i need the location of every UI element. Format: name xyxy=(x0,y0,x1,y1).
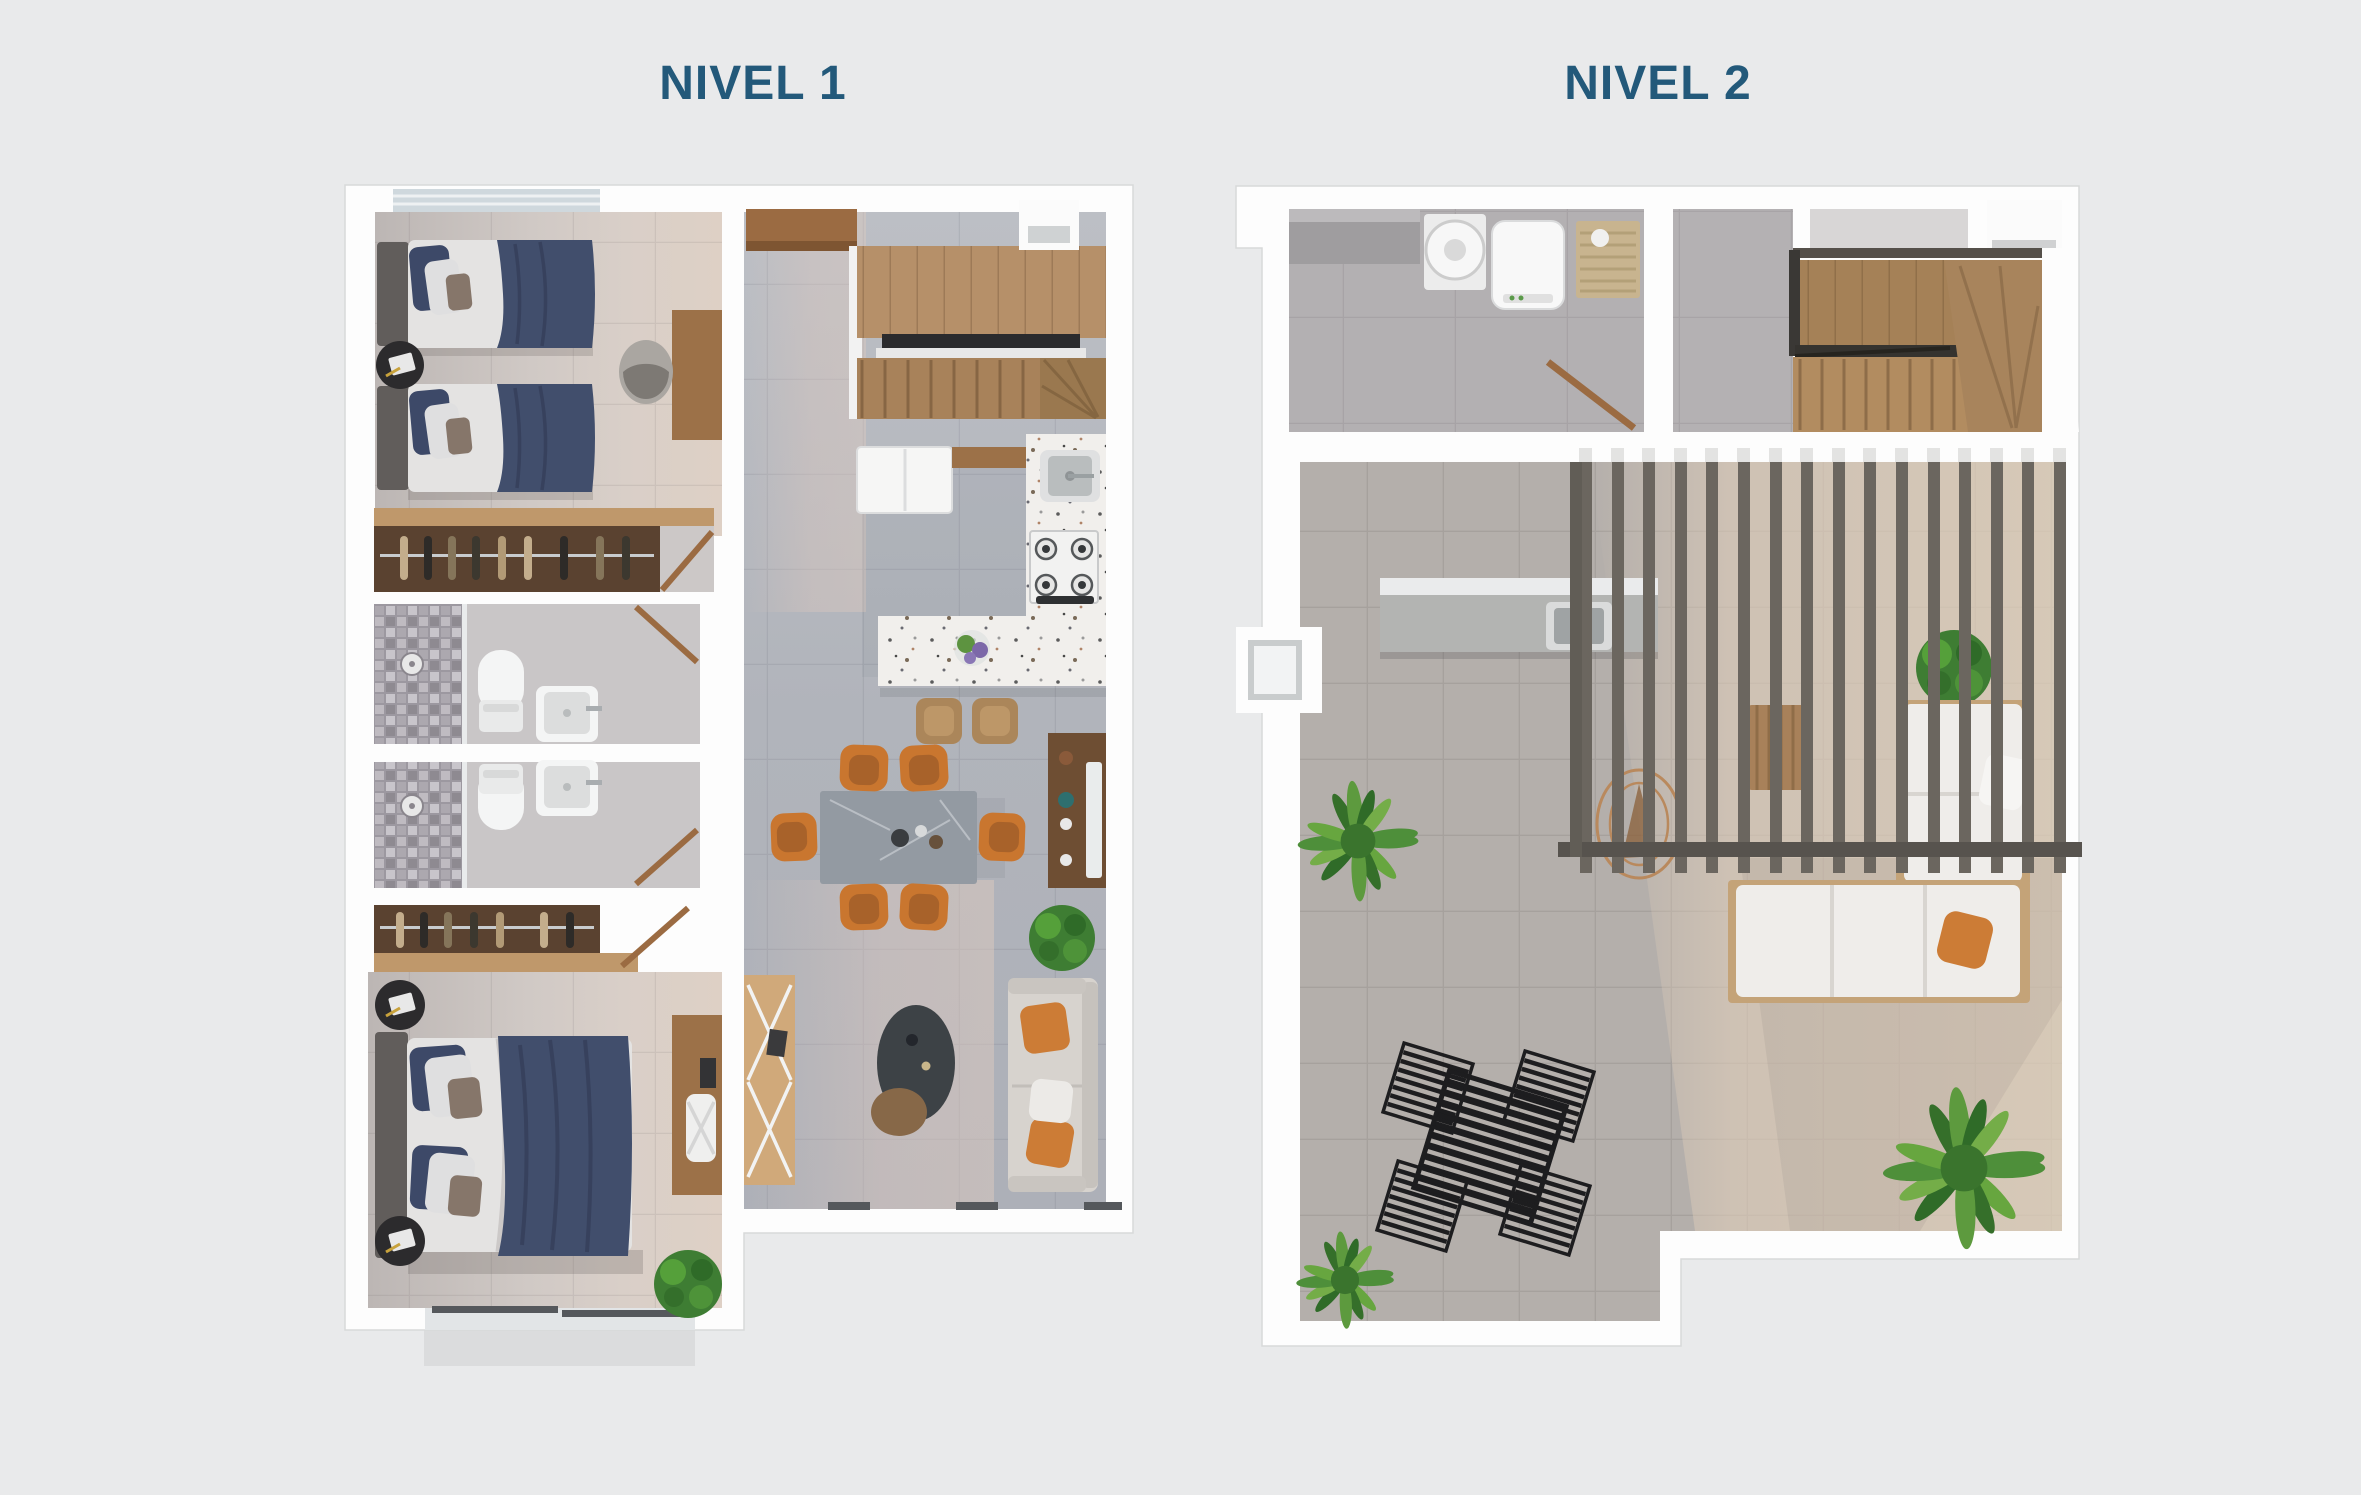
svg-text:NIVEL 2: NIVEL 2 xyxy=(1564,57,1752,110)
svg-text:NIVEL 1: NIVEL 1 xyxy=(659,57,847,110)
